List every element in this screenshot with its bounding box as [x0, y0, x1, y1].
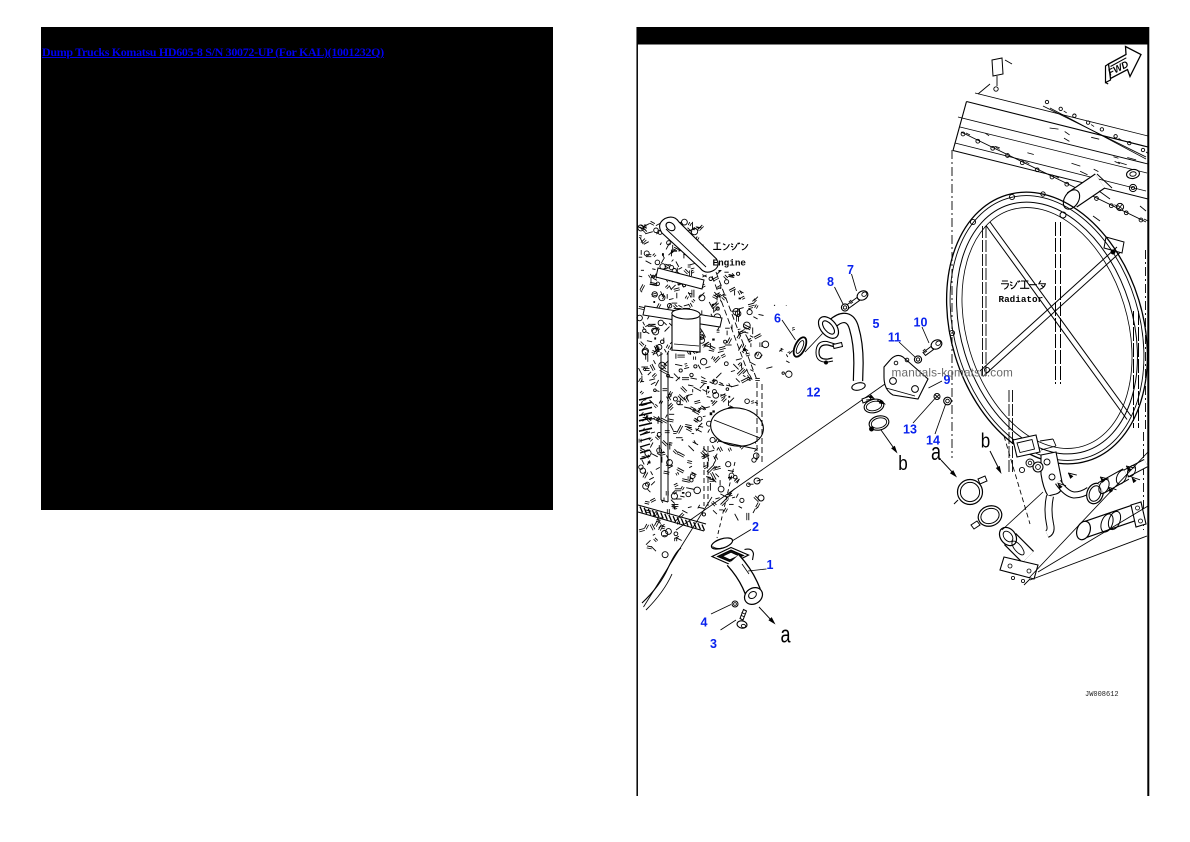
svg-text:Radiator: Radiator [999, 294, 1044, 305]
svg-text:manuals-komatsu.com: manuals-komatsu.com [892, 366, 1014, 380]
svg-text:12: 12 [807, 386, 821, 400]
svg-text:a: a [781, 622, 791, 649]
svg-text:b: b [898, 452, 908, 475]
svg-text:Engine: Engine [713, 258, 747, 269]
svg-text:13: 13 [903, 423, 917, 437]
svg-text:6: 6 [774, 312, 781, 326]
svg-text:a: a [931, 439, 941, 466]
svg-text:4: 4 [701, 616, 708, 630]
svg-text:FWD: FWD [1106, 59, 1130, 79]
svg-text:1: 1 [767, 558, 774, 572]
svg-text:5: 5 [873, 317, 880, 331]
svg-text:b: b [981, 430, 991, 453]
svg-text:JW008612: JW008612 [1085, 691, 1119, 699]
svg-text:8: 8 [827, 275, 834, 289]
svg-text:10: 10 [914, 316, 928, 330]
svg-text:7: 7 [847, 263, 854, 277]
svg-text:2: 2 [752, 520, 759, 534]
svg-text:3: 3 [710, 637, 717, 651]
svg-text:11: 11 [888, 331, 901, 345]
